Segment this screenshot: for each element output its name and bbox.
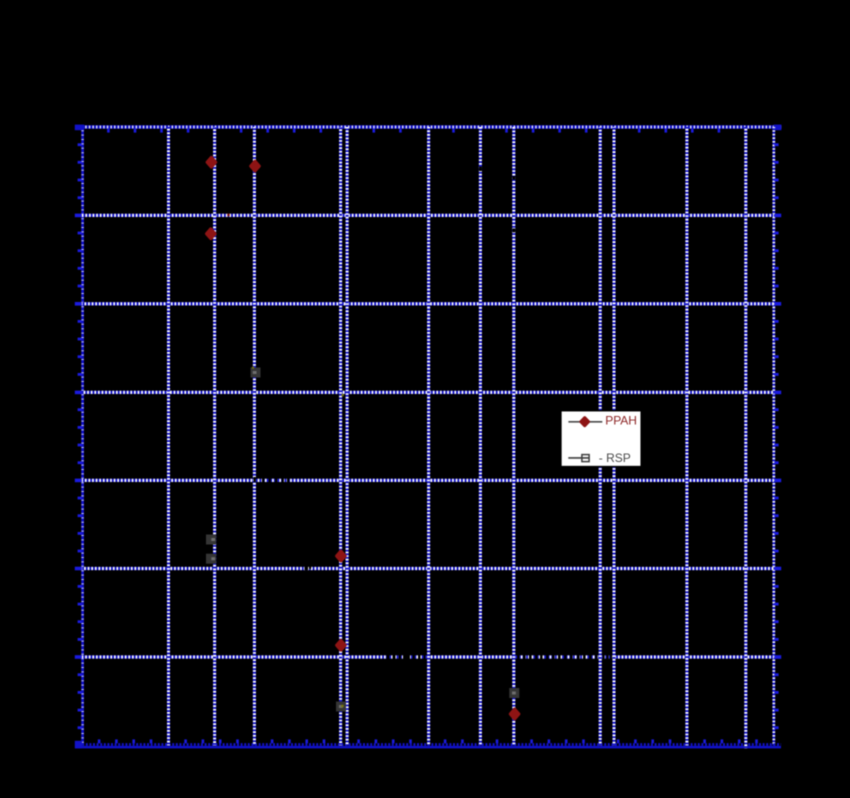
svg-text:- RSP: - RSP <box>599 451 631 465</box>
svg-text:PPAH: PPAH <box>605 414 637 428</box>
